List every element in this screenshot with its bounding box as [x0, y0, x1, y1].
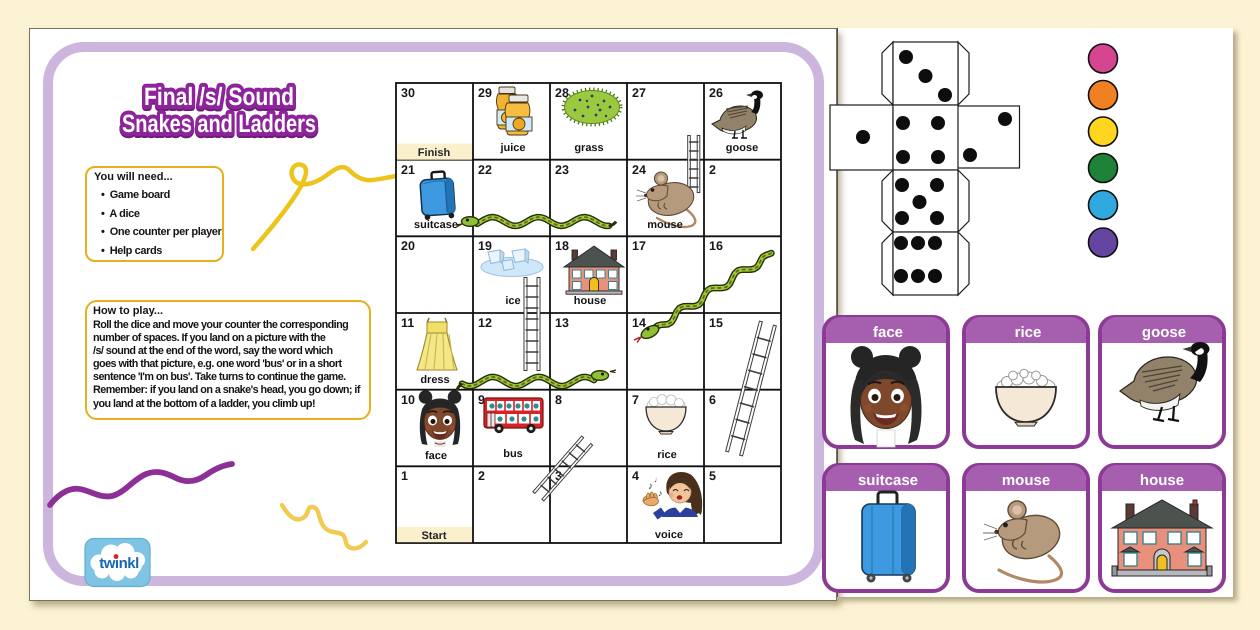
svg-text:face: face: [873, 324, 903, 341]
svg-text:goose: goose: [1142, 324, 1186, 341]
svg-text:mouse: mouse: [1002, 472, 1050, 489]
svg-text:house: house: [1140, 472, 1184, 489]
svg-text:suitcase: suitcase: [858, 472, 918, 489]
svg-text:rice: rice: [1015, 324, 1042, 341]
